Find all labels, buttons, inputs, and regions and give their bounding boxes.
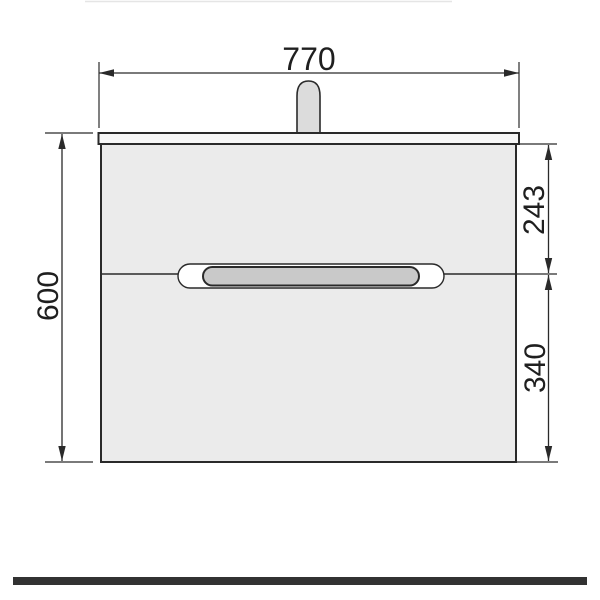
countertop — [99, 133, 520, 144]
dimension-lower-section: 340 — [516, 275, 558, 462]
dimension-height: 600 — [32, 133, 93, 462]
technical-drawing-page: 770 600 243 340 — [0, 0, 600, 600]
cabinet-body — [101, 144, 516, 462]
footer-bar — [13, 577, 587, 585]
drawer-handle — [203, 267, 419, 286]
faucet-shape — [297, 81, 320, 134]
vanity-dimension-drawing: 770 600 243 340 — [0, 0, 600, 600]
dimension-label-width: 770 — [282, 41, 335, 77]
dimension-label-upper-section: 243 — [518, 185, 551, 235]
dimension-label-lower-section: 340 — [519, 343, 552, 393]
dimension-upper-section: 243 — [516, 144, 557, 274]
dimension-label-height: 600 — [32, 271, 65, 321]
